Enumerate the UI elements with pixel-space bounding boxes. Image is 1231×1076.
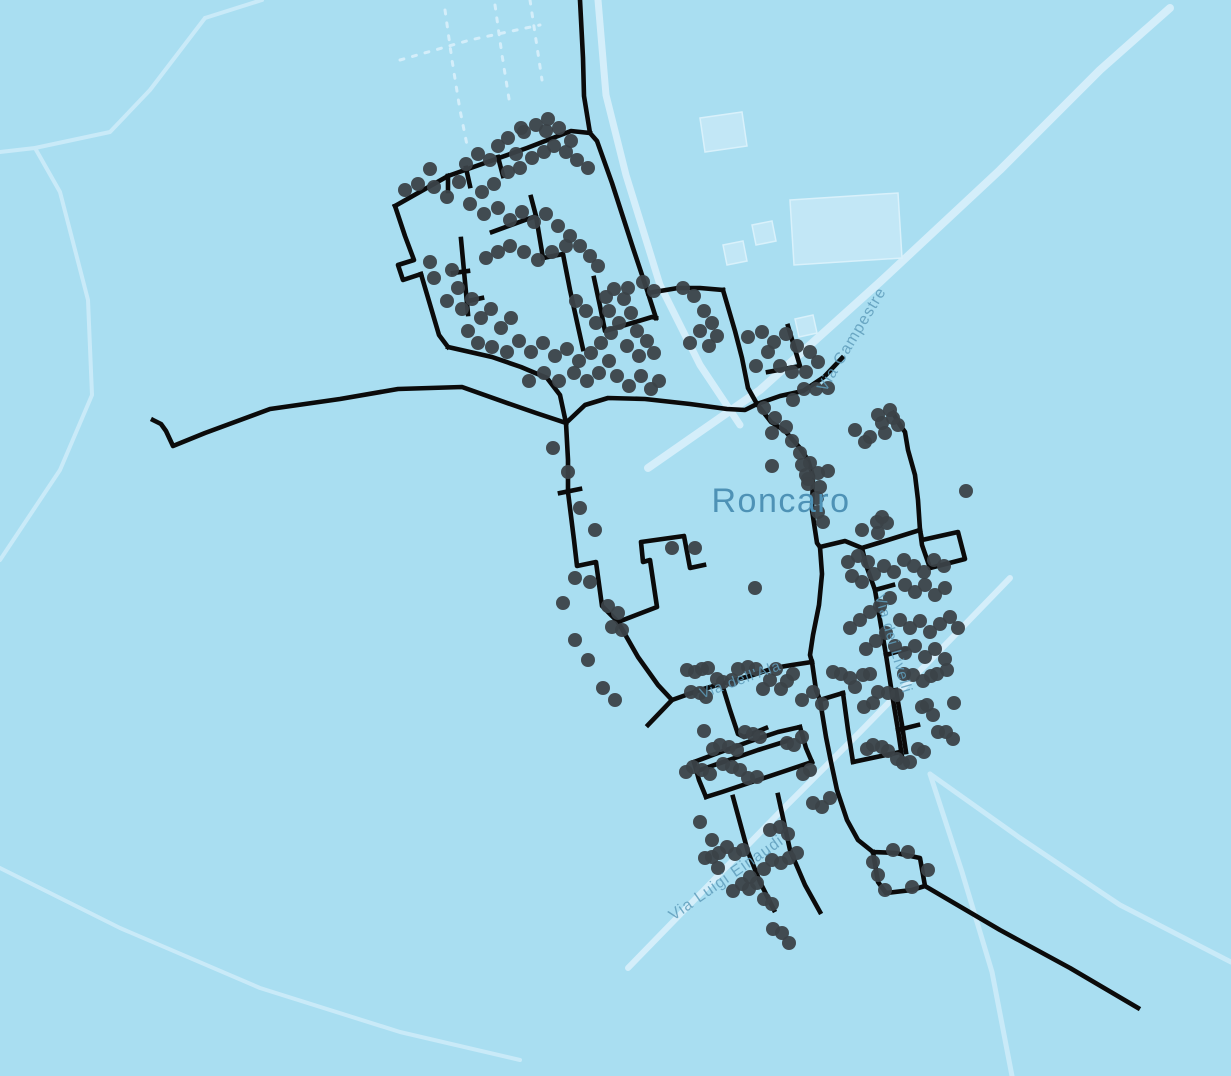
point-marker[interactable] [918, 578, 932, 592]
point-marker[interactable] [594, 336, 608, 350]
point-marker[interactable] [908, 639, 922, 653]
map-canvas[interactable]: RoncaroVia CampestreVia dell'AlaVia Luig… [0, 0, 1231, 1076]
point-marker[interactable] [556, 596, 570, 610]
point-marker[interactable] [602, 304, 616, 318]
point-marker[interactable] [781, 827, 795, 841]
point-marker[interactable] [940, 663, 954, 677]
point-marker[interactable] [559, 239, 573, 253]
point-marker[interactable] [471, 336, 485, 350]
point-marker[interactable] [500, 345, 514, 359]
point-marker[interactable] [591, 259, 605, 273]
point-marker[interactable] [483, 153, 497, 167]
point-marker[interactable] [552, 121, 566, 135]
point-marker[interactable] [765, 897, 779, 911]
point-marker[interactable] [697, 724, 711, 738]
point-marker[interactable] [765, 426, 779, 440]
point-marker[interactable] [797, 382, 811, 396]
point-marker[interactable] [459, 157, 473, 171]
point-marker[interactable] [903, 755, 917, 769]
point-marker[interactable] [665, 541, 679, 555]
point-marker[interactable] [568, 633, 582, 647]
point-marker[interactable] [537, 145, 551, 159]
point-marker[interactable] [539, 124, 553, 138]
point-marker[interactable] [537, 366, 551, 380]
point-marker[interactable] [451, 281, 465, 295]
point-marker[interactable] [887, 565, 901, 579]
point-marker[interactable] [757, 401, 771, 415]
point-marker[interactable] [679, 765, 693, 779]
point-marker[interactable] [440, 294, 454, 308]
point-marker[interactable] [607, 282, 621, 296]
point-marker[interactable] [688, 541, 702, 555]
point-marker[interactable] [750, 770, 764, 784]
point-marker[interactable] [455, 302, 469, 316]
point-marker[interactable] [779, 420, 793, 434]
point-marker[interactable] [536, 336, 550, 350]
building-footprint [795, 315, 817, 337]
point-marker[interactable] [806, 685, 820, 699]
point-marker[interactable] [748, 581, 762, 595]
point-marker[interactable] [951, 621, 965, 635]
building-footprint [700, 112, 747, 152]
point-marker[interactable] [697, 304, 711, 318]
point-marker[interactable] [588, 523, 602, 537]
point-marker[interactable] [423, 255, 437, 269]
point-marker[interactable] [768, 411, 782, 425]
point-marker[interactable] [782, 936, 796, 950]
point-marker[interactable] [427, 271, 441, 285]
point-marker[interactable] [753, 730, 767, 744]
point-marker[interactable] [917, 745, 931, 759]
point-marker[interactable] [568, 571, 582, 585]
point-marker[interactable] [871, 526, 885, 540]
point-marker[interactable] [793, 446, 807, 460]
point-marker[interactable] [463, 197, 477, 211]
point-marker[interactable] [471, 147, 485, 161]
point-marker[interactable] [866, 855, 880, 869]
point-marker[interactable] [605, 620, 619, 634]
point-marker[interactable] [634, 369, 648, 383]
point-marker[interactable] [512, 334, 526, 348]
point-marker[interactable] [921, 863, 935, 877]
point-marker[interactable] [790, 339, 804, 353]
point-marker[interactable] [687, 289, 701, 303]
point-marker[interactable] [552, 374, 566, 388]
point-marker[interactable] [652, 374, 666, 388]
point-marker[interactable] [796, 767, 810, 781]
point-marker[interactable] [785, 365, 799, 379]
point-marker[interactable] [610, 369, 624, 383]
point-marker[interactable] [503, 213, 517, 227]
point-marker[interactable] [602, 354, 616, 368]
point-marker[interactable] [503, 239, 517, 253]
point-marker[interactable] [859, 642, 873, 656]
point-marker[interactable] [522, 374, 536, 388]
point-marker[interactable] [871, 868, 885, 882]
point-marker[interactable] [799, 365, 813, 379]
point-marker[interactable] [560, 342, 574, 356]
building-footprint [752, 221, 776, 245]
point-marker[interactable] [632, 349, 646, 363]
point-marker[interactable] [541, 112, 555, 126]
point-marker[interactable] [592, 366, 606, 380]
point-marker[interactable] [761, 345, 775, 359]
point-marker[interactable] [647, 346, 661, 360]
point-marker[interactable] [524, 345, 538, 359]
point-marker[interactable] [741, 330, 755, 344]
point-marker[interactable] [861, 555, 875, 569]
point-marker[interactable] [886, 843, 900, 857]
point-marker[interactable] [698, 851, 712, 865]
point-marker[interactable] [938, 581, 952, 595]
point-marker[interactable] [427, 180, 441, 194]
point-marker[interactable] [608, 693, 622, 707]
point-marker[interactable] [891, 418, 905, 432]
point-marker[interactable] [477, 207, 491, 221]
point-marker[interactable] [475, 185, 489, 199]
point-marker[interactable] [531, 253, 545, 267]
point-marker[interactable] [705, 833, 719, 847]
point-marker[interactable] [487, 177, 501, 191]
point-marker[interactable] [773, 359, 787, 373]
point-marker[interactable] [517, 245, 531, 259]
point-marker[interactable] [440, 190, 454, 204]
point-marker[interactable] [573, 501, 587, 515]
point-marker[interactable] [710, 329, 724, 343]
map-background [0, 0, 1231, 1076]
point-marker[interactable] [515, 205, 529, 219]
point-marker[interactable] [863, 667, 877, 681]
point-marker[interactable] [913, 614, 927, 628]
point-marker[interactable] [546, 441, 560, 455]
point-marker[interactable] [683, 336, 697, 350]
point-marker[interactable] [765, 459, 779, 473]
point-marker[interactable] [701, 661, 715, 675]
building-footprint [723, 241, 747, 265]
point-marker[interactable] [589, 316, 603, 330]
point-marker[interactable] [815, 697, 829, 711]
point-marker[interactable] [494, 321, 508, 335]
point-marker[interactable] [917, 565, 931, 579]
point-marker[interactable] [569, 294, 583, 308]
point-marker[interactable] [561, 465, 575, 479]
point-marker[interactable] [504, 311, 518, 325]
point-marker[interactable] [749, 359, 763, 373]
point-marker[interactable] [755, 325, 769, 339]
point-marker[interactable] [779, 327, 793, 341]
point-marker[interactable] [878, 426, 892, 440]
point-marker[interactable] [581, 161, 595, 175]
point-marker[interactable] [705, 316, 719, 330]
point-marker[interactable] [905, 880, 919, 894]
point-marker[interactable] [539, 207, 553, 221]
point-marker[interactable] [937, 559, 951, 573]
point-marker[interactable] [485, 340, 499, 354]
point-marker[interactable] [630, 324, 644, 338]
point-marker[interactable] [583, 575, 597, 589]
point-marker[interactable] [452, 175, 466, 189]
point-marker[interactable] [423, 162, 437, 176]
building-footprint [790, 193, 902, 265]
point-marker[interactable] [848, 423, 862, 437]
point-marker[interactable] [484, 302, 498, 316]
point-marker[interactable] [821, 464, 835, 478]
point-marker[interactable] [901, 845, 915, 859]
point-marker[interactable] [860, 742, 874, 756]
point-marker[interactable] [855, 523, 869, 537]
point-marker[interactable] [564, 134, 578, 148]
point-marker[interactable] [785, 434, 799, 448]
point-marker[interactable] [572, 354, 586, 368]
point-marker[interactable] [640, 334, 654, 348]
point-marker[interactable] [946, 732, 960, 746]
point-marker[interactable] [823, 791, 837, 805]
point-marker[interactable] [579, 304, 593, 318]
point-marker[interactable] [584, 346, 598, 360]
point-marker[interactable] [527, 215, 541, 229]
point-marker[interactable] [551, 219, 565, 233]
point-marker[interactable] [573, 239, 587, 253]
point-marker[interactable] [491, 201, 505, 215]
point-marker[interactable] [513, 161, 527, 175]
point-marker[interactable] [843, 621, 857, 635]
point-marker[interactable] [398, 183, 412, 197]
point-marker[interactable] [636, 275, 650, 289]
point-marker[interactable] [693, 324, 707, 338]
point-marker[interactable] [730, 743, 744, 757]
point-marker[interactable] [811, 355, 825, 369]
point-marker[interactable] [624, 306, 638, 320]
point-marker[interactable] [926, 708, 940, 722]
point-marker[interactable] [647, 284, 661, 298]
point-marker[interactable] [548, 349, 562, 363]
point-marker[interactable] [611, 606, 625, 620]
point-marker[interactable] [786, 393, 800, 407]
point-marker[interactable] [612, 316, 626, 330]
point-marker[interactable] [509, 147, 523, 161]
network-line [566, 423, 568, 492]
point-marker[interactable] [857, 700, 871, 714]
point-marker[interactable] [479, 251, 493, 265]
point-marker[interactable] [621, 281, 635, 295]
point-marker[interactable] [878, 883, 892, 897]
point-marker[interactable] [491, 245, 505, 259]
map-view[interactable]: RoncaroVia CampestreVia dell'AlaVia Luig… [0, 0, 1231, 1076]
point-marker[interactable] [795, 730, 809, 744]
point-marker[interactable] [622, 379, 636, 393]
point-marker[interactable] [581, 653, 595, 667]
point-marker[interactable] [959, 484, 973, 498]
point-marker[interactable] [855, 575, 869, 589]
point-marker[interactable] [514, 121, 528, 135]
town-label: Roncaro [711, 482, 850, 520]
point-marker[interactable] [931, 725, 945, 739]
point-marker[interactable] [786, 667, 800, 681]
point-marker[interactable] [501, 131, 515, 145]
point-marker[interactable] [596, 681, 610, 695]
point-marker[interactable] [461, 324, 475, 338]
point-marker[interactable] [545, 245, 559, 259]
point-marker[interactable] [863, 430, 877, 444]
point-marker[interactable] [580, 374, 594, 388]
point-marker[interactable] [567, 366, 581, 380]
point-marker[interactable] [411, 177, 425, 191]
point-marker[interactable] [928, 642, 942, 656]
point-marker[interactable] [947, 696, 961, 710]
point-marker[interactable] [620, 339, 634, 353]
point-marker[interactable] [848, 680, 862, 694]
point-marker[interactable] [465, 292, 479, 306]
point-marker[interactable] [693, 815, 707, 829]
point-marker[interactable] [445, 263, 459, 277]
point-marker[interactable] [525, 151, 539, 165]
point-marker[interactable] [501, 165, 515, 179]
